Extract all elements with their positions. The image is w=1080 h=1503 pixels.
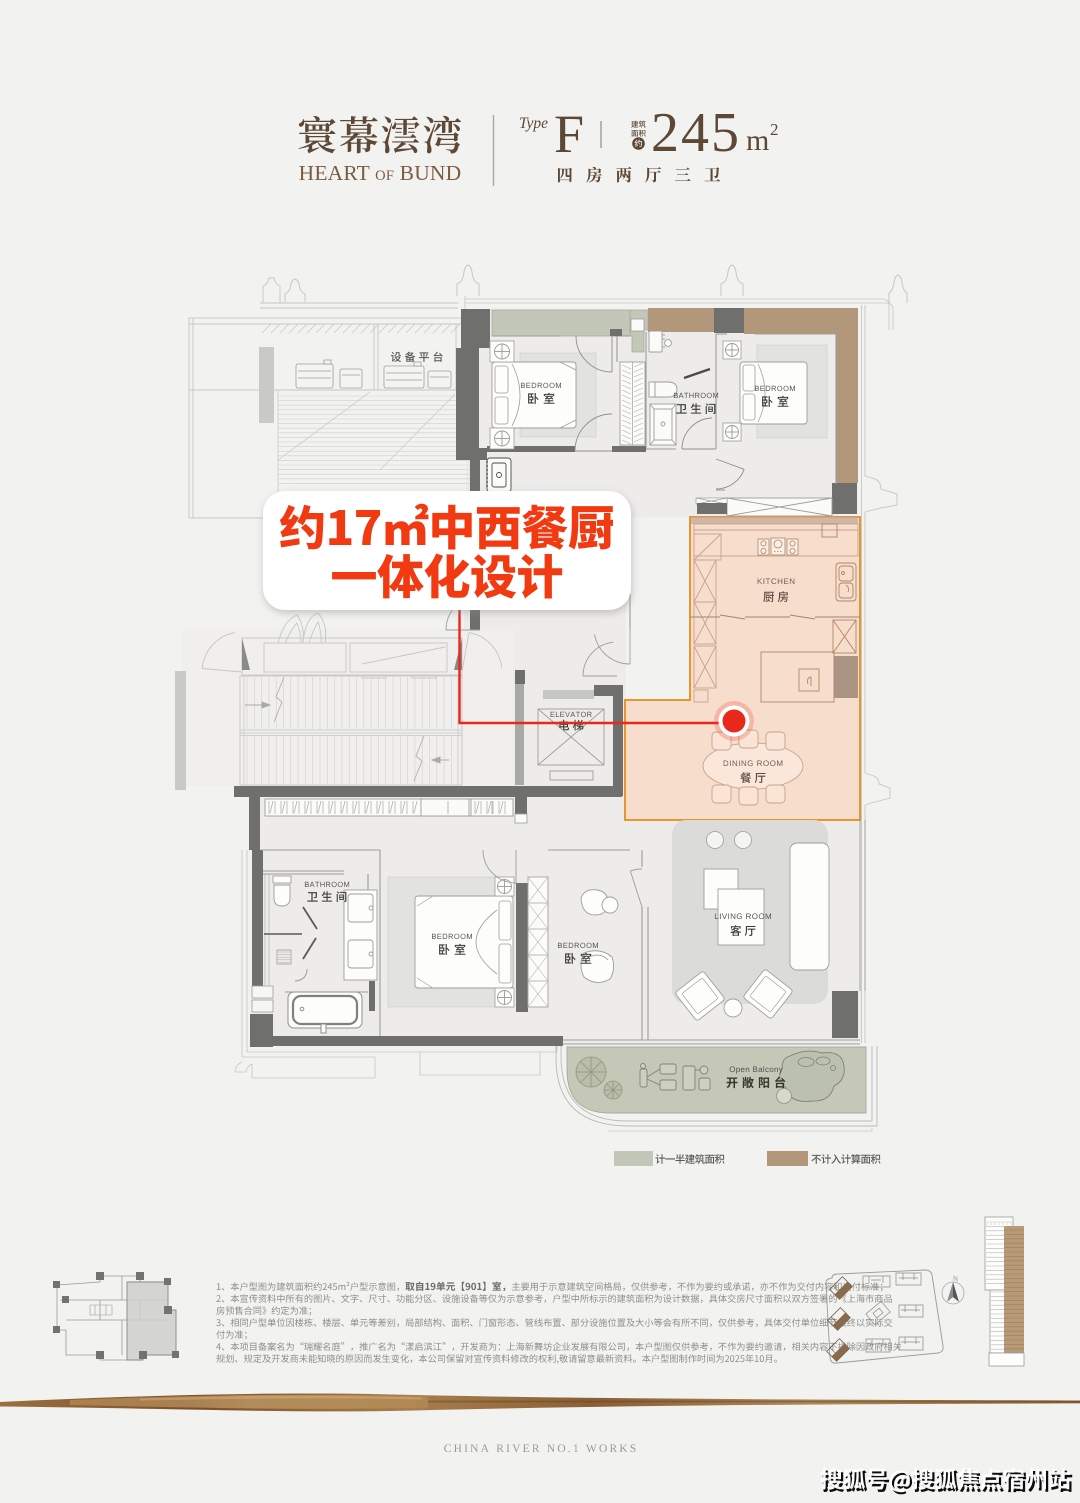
svg-text:m: m xyxy=(746,124,769,157)
svg-text:245: 245 xyxy=(651,102,741,164)
svg-text:Type: Type xyxy=(519,115,548,132)
svg-text:2: 2 xyxy=(770,120,779,139)
svg-text:F: F xyxy=(554,104,584,164)
